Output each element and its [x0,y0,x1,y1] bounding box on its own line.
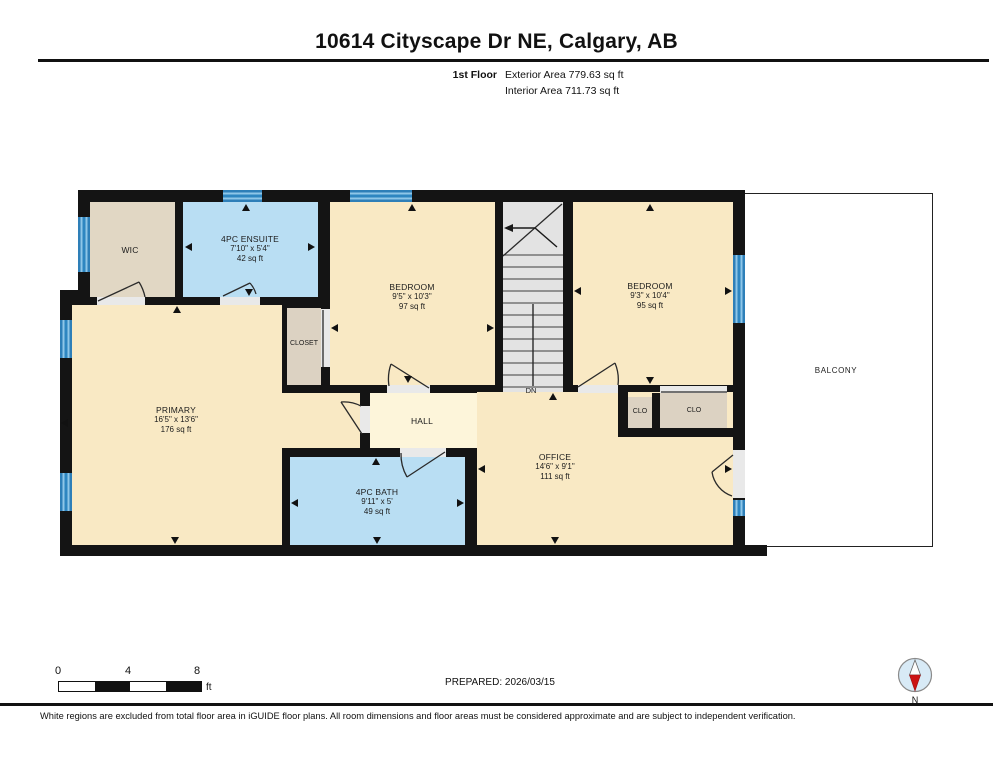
footer-divider [0,703,993,706]
room-clo-large [660,393,727,428]
door-threshold-wic [97,297,145,305]
window-top-ensuite [223,190,262,202]
interior-area: Interior Area 711.73 sq ft [505,85,619,97]
window-right-bedroom2 [733,255,745,323]
clo-wall-mid [652,393,660,428]
door-threshold-primary [360,406,370,433]
exterior-area: Exterior Area 779.63 sq ft [505,69,623,81]
door-threshold-bedroom1 [387,385,430,393]
room-wic [90,202,175,297]
scale-unit: ft [206,682,212,693]
door-threshold-balcony [733,450,745,498]
scale-seg [59,682,95,691]
prepared-date: PREPARED: 2026/03/15 [400,677,600,688]
header-divider [38,59,989,62]
page-title: 10614 Cityscape Dr NE, Calgary, AB [0,30,993,54]
room-ensuite [183,202,318,297]
scale-tick-4: 4 [120,665,136,677]
room-hall [370,393,477,448]
scale-seg [130,682,166,691]
door-threshold-bedroom2 [578,385,618,393]
room-bedroom1 [330,202,495,385]
room-closet [287,308,321,385]
room-label-balcony: BALCONY [776,366,896,375]
scale-bar [58,681,202,692]
clo-slider-threshold [660,386,727,393]
window-left-wic [78,217,90,272]
room-bath [290,457,465,545]
scale-tick-0: 0 [50,665,66,677]
unit-wall-bottom-ext [745,545,767,556]
room-primary [72,305,282,545]
window-top-bedroom1 [350,190,412,202]
door-threshold-ensuite [220,297,260,305]
stairwell [503,202,563,392]
clo-wall-bottom [618,428,745,437]
room-primary-entry [282,393,360,448]
disclaimer-text: White regions are excluded from total fl… [40,711,960,721]
window-left-primary-upper [60,320,72,358]
floorplan-page: 10614 Cityscape Dr NE, Calgary, AB 1st F… [0,0,993,768]
floor-label: 1st Floor [340,69,497,81]
window-right-office [733,500,745,516]
compass-icon [899,659,932,692]
window-left-primary-lower [60,473,72,511]
scale-tick-8: 8 [189,665,205,677]
room-clo-small [628,397,652,428]
room-bedroom2 [573,202,733,385]
door-threshold-bath [400,448,446,457]
door-threshold-closet [321,309,330,367]
scale-seg [166,682,202,691]
scale-seg [95,682,131,691]
